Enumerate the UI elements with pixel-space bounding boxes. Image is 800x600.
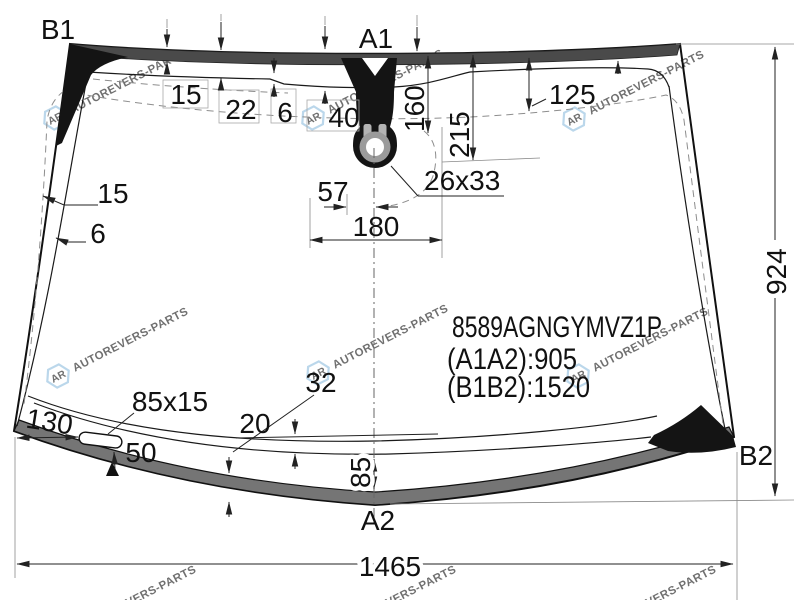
dim-edge-22: 22 <box>225 94 256 125</box>
dim-v-215: 215 <box>444 111 475 158</box>
dimension-lines <box>17 22 775 564</box>
label-b2: B2 <box>739 440 773 471</box>
windshield-diagram-page: AR AUTOREVERS-PARTS <box>0 0 800 600</box>
part-width-b1b2: (B1B2):1520 <box>447 371 590 404</box>
label-b1: B1 <box>41 14 75 45</box>
mirror-mount-hole <box>366 138 384 156</box>
ceramic-edge-right <box>669 86 725 429</box>
dim-left-15: 15 <box>97 178 128 209</box>
corner-patch-bottom-right <box>648 405 736 453</box>
dim-v-924: 924 <box>761 248 792 295</box>
dim-left-6: 6 <box>90 218 106 249</box>
dim-180: 180 <box>353 211 400 242</box>
label-a1: A1 <box>359 23 393 54</box>
label-a2: A2 <box>361 505 395 536</box>
windshield-diagram: AR AUTOREVERS-PARTS <box>0 0 800 600</box>
part-number: 8589AGNGYMVZ1P <box>452 311 662 344</box>
dim-v-160: 160 <box>399 85 430 132</box>
dim-50: 50 <box>125 437 156 468</box>
dim-57: 57 <box>317 176 348 207</box>
dim-sensor-85x15: 85x15 <box>132 386 208 417</box>
dim-mirror-26x33: 26x33 <box>424 165 500 196</box>
dim-width-1465: 1465 <box>359 551 421 582</box>
dim-32: 32 <box>305 367 336 398</box>
dim-gap-6: 6 <box>277 97 293 128</box>
glass-outline <box>14 44 736 526</box>
dim-strip-15: 15 <box>170 79 201 110</box>
dim-20: 20 <box>239 408 270 439</box>
dim-125: 125 <box>549 79 596 110</box>
part-info: 8589AGNGYMVZ1P (A1A2):905 (B1B2):1520 <box>447 311 662 404</box>
dim-v-85: 85 <box>345 457 376 488</box>
dim-mount-40: 40 <box>328 102 359 133</box>
